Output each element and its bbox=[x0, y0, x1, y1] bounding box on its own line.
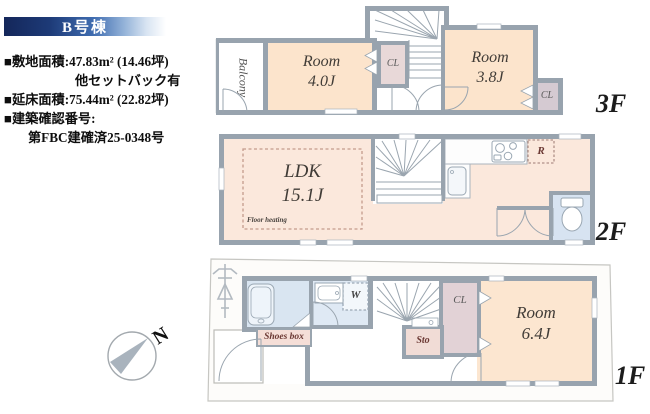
stair-base-counter bbox=[412, 318, 438, 327]
room-3f-a-name: Room bbox=[267, 52, 376, 72]
floorplan-page: B号棟 ■敷地面積:47.83m² (14.46坪) 他セットバック有 ■延床面… bbox=[0, 0, 650, 414]
property-info: ■敷地面積:47.83m² (14.46坪) 他セットバック有 ■延床面積:75… bbox=[4, 52, 219, 147]
closet-1f-label: CL bbox=[441, 294, 479, 308]
floor-area-line: ■延床面積:75.44m² (22.82坪) bbox=[4, 90, 219, 109]
room-3f-a-label: Room 4.0J bbox=[267, 52, 376, 92]
setback-note-line: 他セットバック有 bbox=[4, 71, 219, 90]
shoes-box-label: Shoes box bbox=[257, 332, 311, 344]
building-title-banner: B号棟 bbox=[4, 17, 166, 36]
room-3f-a-size: 4.0J bbox=[267, 72, 376, 92]
ldk-name: LDK bbox=[243, 160, 362, 184]
room-1f-size: 6.4J bbox=[477, 323, 595, 344]
confirmation-number-line: 第FBC建確済25-0348号 bbox=[4, 128, 219, 147]
floor-2f-label: 2F bbox=[586, 216, 636, 249]
closet-3f-a-label: CL bbox=[377, 58, 409, 71]
washbasin-icon bbox=[315, 283, 343, 303]
stove-icon bbox=[492, 141, 525, 162]
floor-3f-label: 3F bbox=[586, 88, 636, 121]
room-3f-b-label: Room 3.8J bbox=[444, 48, 536, 88]
floor-1f-closet bbox=[441, 281, 479, 355]
toilet-icon bbox=[561, 198, 583, 231]
room-1f-label: Room 6.4J bbox=[477, 302, 595, 345]
refrigerator-label: R bbox=[528, 145, 554, 159]
building-title: B号棟 bbox=[62, 16, 108, 37]
floor-1f-label: 1F bbox=[608, 360, 650, 393]
site-area-line: ■敷地面積:47.83m² (14.46坪) bbox=[4, 52, 219, 71]
ldk-size: 15.1J bbox=[243, 184, 362, 208]
room-3f-b-size: 3.8J bbox=[444, 68, 536, 88]
room-1f-name: Room bbox=[477, 302, 595, 323]
closet-3f-b-label: CL bbox=[533, 90, 561, 103]
kitchen-sink-icon bbox=[448, 167, 466, 195]
storage-label: Sto bbox=[404, 335, 442, 348]
room-3f-b-name: Room bbox=[444, 48, 536, 68]
ldk-label: LDK 15.1J bbox=[243, 160, 362, 208]
confirmation-label-line: ■建築確認番号: bbox=[4, 109, 219, 128]
floor-heating-label: Floor heating bbox=[247, 216, 307, 225]
washer-label: W bbox=[343, 289, 368, 303]
balcony-label: Balcony bbox=[236, 41, 251, 115]
bathtub-icon bbox=[248, 284, 274, 325]
